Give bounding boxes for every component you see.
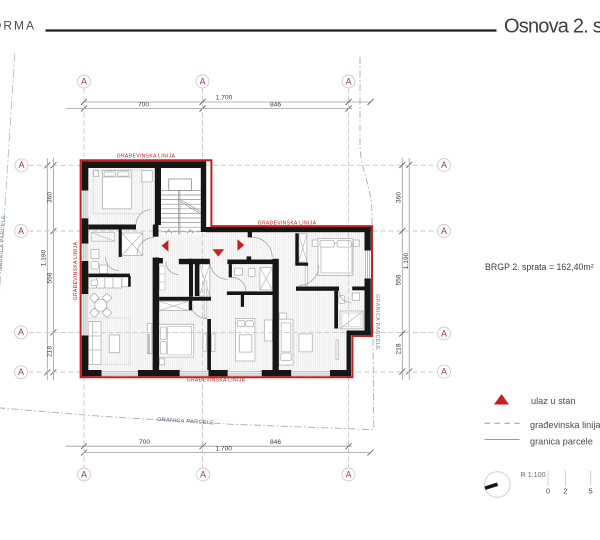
svg-text:A: A [441, 328, 447, 338]
svg-text:A: A [18, 367, 24, 377]
svg-text:A: A [441, 160, 447, 170]
svg-text:A: A [441, 366, 447, 376]
svg-text:558: 558 [396, 274, 403, 285]
svg-text:GRAĐEVINSKA LINIJA: GRAĐEVINSKA LINIJA [117, 154, 176, 160]
svg-text:GRANICA PARCELE: GRANICA PARCELE [374, 294, 380, 350]
svg-text:A: A [200, 469, 206, 479]
svg-text:građevinska linija: građevinska linija [530, 420, 600, 430]
svg-text:A: A [346, 469, 352, 479]
svg-text:700: 700 [139, 439, 150, 446]
svg-text:A: A [441, 226, 447, 236]
svg-text:A: A [18, 327, 24, 337]
svg-text:GRAĐEVINSKA LINIJA: GRAĐEVINSKA LINIJA [187, 378, 246, 384]
svg-text:846: 846 [270, 439, 281, 446]
svg-text:360: 360 [396, 192, 403, 203]
svg-text:1.190: 1.190 [403, 252, 410, 269]
svg-text:R 1:100: R 1:100 [521, 470, 546, 479]
svg-text:A: A [81, 469, 87, 479]
svg-text:A: A [200, 76, 206, 86]
svg-text:218: 218 [396, 343, 403, 354]
svg-text:1.700: 1.700 [216, 95, 233, 102]
svg-text:A: A [81, 76, 87, 86]
svg-text:2: 2 [563, 487, 567, 496]
svg-text:BRGP 2. sprata = 162,40m²: BRGP 2. sprata = 162,40m² [485, 262, 594, 272]
svg-text:1.700: 1.700 [215, 446, 232, 453]
svg-text:5: 5 [589, 487, 593, 496]
svg-text:846: 846 [270, 101, 281, 108]
svg-text:Osnova 2. sprata: Osnova 2. sprata [504, 16, 600, 38]
svg-text:0: 0 [546, 487, 550, 496]
svg-text:GRAĐEVINSKA LINIJA: GRAĐEVINSKA LINIJA [73, 241, 79, 300]
svg-text:granica parcele: granica parcele [530, 436, 593, 446]
svg-text:218: 218 [47, 346, 54, 357]
svg-text:A: A [19, 160, 25, 170]
svg-text:360: 360 [47, 192, 54, 203]
svg-text:A: A [346, 76, 352, 86]
svg-text:558: 558 [47, 272, 54, 283]
svg-text:ulaz u stan: ulaz u stan [531, 396, 575, 406]
svg-text:1.190: 1.190 [40, 249, 47, 266]
svg-text:GRAĐEVINSKA LINIJA: GRAĐEVINSKA LINIJA [258, 220, 317, 226]
svg-text:700: 700 [138, 101, 149, 108]
svg-text:A: A [18, 226, 24, 236]
svg-text:ORMA: ORMA [0, 19, 36, 33]
